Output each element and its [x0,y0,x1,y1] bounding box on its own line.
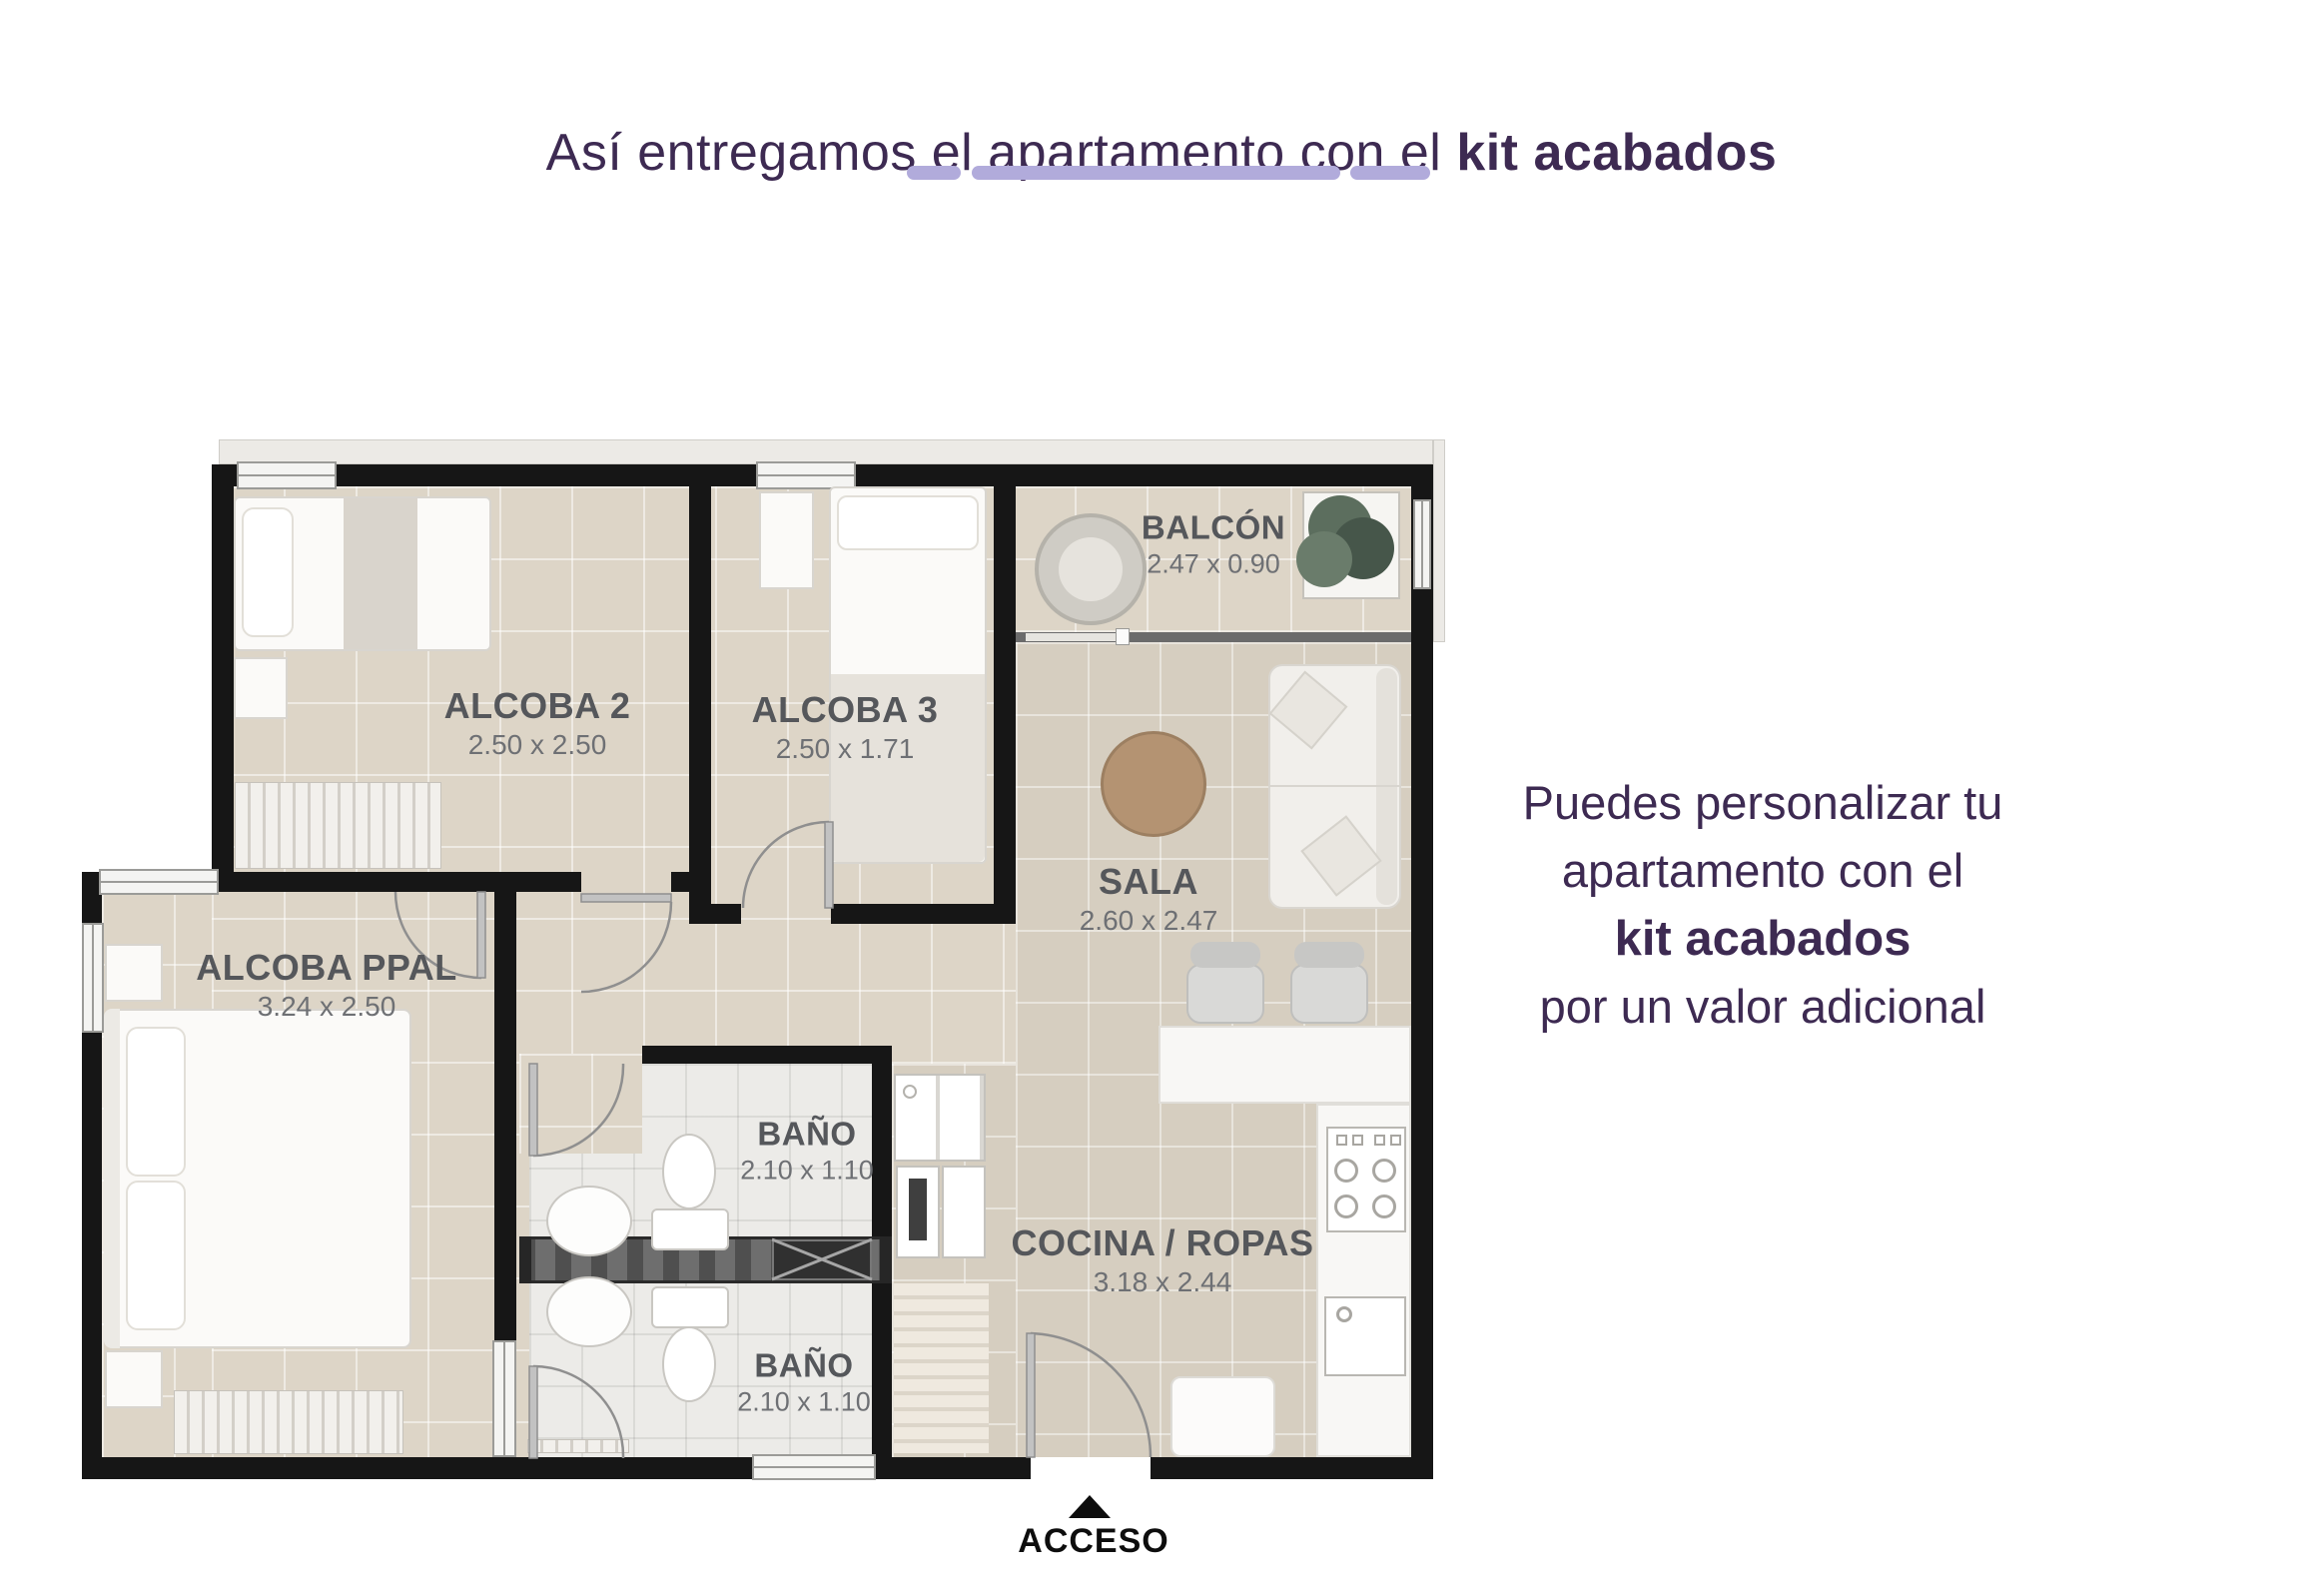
access-arrow-icon [1069,1495,1111,1518]
room-label-alcoba2: ALCOBA 2 2.50 x 2.50 [444,685,631,761]
access-label: ACCESO [934,1522,1253,1561]
room-name: BAÑO [740,1116,874,1154]
title-underline-dash-right [1350,166,1430,180]
room-dims: 3.24 x 2.50 [196,991,457,1023]
side-note-line-2: apartamento con el [1513,837,2012,905]
room-name: BAÑO [737,1347,871,1385]
room-label-bano1: BAÑO 2.10 x 1.10 [740,1116,874,1187]
room-name: ALCOBA PPAL [196,947,457,989]
room-name: SALA [1080,861,1218,903]
room-label-alcoba3: ALCOBA 3 2.50 x 1.71 [752,689,939,765]
room-label-sala: SALA 2.60 x 2.47 [1080,861,1218,937]
room-dims: 2.10 x 1.10 [737,1387,871,1418]
room-name: BALCÓN [1142,509,1285,547]
side-note: Puedes personalizar tu apartamento con e… [1513,769,2012,1041]
room-dims: 2.47 x 0.90 [1142,549,1285,580]
room-label-alcoba-ppal: ALCOBA PPAL 3.24 x 2.50 [196,947,457,1023]
room-dims: 3.18 x 2.44 [1011,1266,1313,1298]
room-dims: 2.60 x 2.47 [1080,905,1218,937]
page-title-bold: kit acabados [1456,124,1777,182]
side-note-line-1: Puedes personalizar tu [1513,769,2012,837]
room-dims: 2.10 x 1.10 [740,1156,874,1187]
floor-plan: ALCOBA 2 2.50 x 2.50 ALCOBA 3 2.50 x 1.7… [82,439,1445,1489]
title-underline-bar [972,166,1340,180]
side-note-line-3: kit acabados [1513,905,2012,973]
room-name: COCINA / ROPAS [1011,1222,1313,1264]
room-dims: 2.50 x 1.71 [752,733,939,765]
title-underline-dash-left [907,166,961,180]
room-name: ALCOBA 3 [752,689,939,731]
room-name: ALCOBA 2 [444,685,631,727]
room-label-bano2: BAÑO 2.10 x 1.10 [737,1347,871,1418]
room-label-cocina: COCINA / ROPAS 3.18 x 2.44 [1011,1222,1313,1298]
side-note-line-4: por un valor adicional [1513,973,2012,1041]
room-label-balcon: BALCÓN 2.47 x 0.90 [1142,509,1285,580]
room-dims: 2.50 x 2.50 [444,729,631,761]
